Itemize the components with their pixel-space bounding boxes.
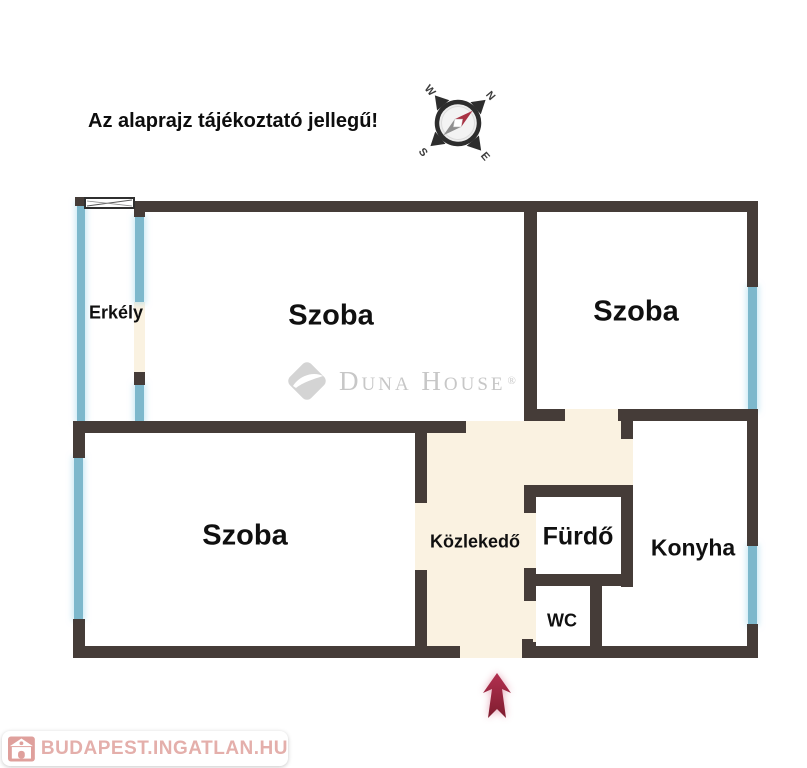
- room-label-szoba-right: Szoba: [593, 296, 678, 329]
- door-opening: [415, 503, 427, 570]
- room-label-furdo: Fürdő: [543, 523, 614, 552]
- window-marker: [135, 217, 144, 302]
- registered-mark: ®: [508, 375, 516, 387]
- room-label-szoba-bottom-left: Szoba: [202, 520, 287, 553]
- wall: [590, 586, 602, 658]
- window-marker: [748, 287, 757, 410]
- wall: [524, 409, 565, 421]
- dunahouse-watermark: Duna House®: [283, 357, 516, 405]
- window-marker: [748, 546, 757, 624]
- disclaimer-text: Az alaprajz tájékoztató jellegű!: [88, 110, 378, 133]
- door-opening: [524, 601, 536, 642]
- wall: [73, 421, 85, 458]
- room-label-wc: WC: [547, 611, 577, 632]
- wall: [73, 421, 466, 433]
- wall: [524, 485, 536, 513]
- window-marker: [74, 458, 83, 619]
- wall: [747, 410, 758, 546]
- compass-icon: N E S W: [408, 73, 508, 173]
- wall: [73, 646, 460, 658]
- room-label-kozlekedo: Közlekedő: [430, 532, 520, 553]
- entrance-arrow-icon: [479, 671, 515, 721]
- wall: [134, 201, 758, 212]
- wall: [134, 372, 145, 385]
- wall: [524, 201, 537, 409]
- wall: [524, 485, 633, 497]
- wall: [747, 201, 758, 287]
- compass-letter-e: E: [478, 150, 492, 163]
- wall: [531, 574, 633, 586]
- compass-letter-s: S: [416, 146, 430, 159]
- window-marker: [135, 385, 144, 421]
- dunahouse-brand-text: Duna House: [339, 366, 506, 397]
- wall: [415, 433, 427, 503]
- ingatlan-house-icon: [8, 736, 35, 762]
- wall: [134, 201, 145, 217]
- wall: [621, 409, 633, 439]
- wall: [415, 570, 427, 658]
- wall: [524, 586, 536, 601]
- wall: [618, 409, 758, 421]
- door-opening: [524, 513, 536, 568]
- balcony-railing: [84, 197, 135, 209]
- wall: [73, 619, 85, 658]
- wall: [621, 485, 633, 587]
- ingatlan-site-text: BUDAPEST.INGATLAN.HU: [41, 738, 288, 760]
- room-label-konyha: Konyha: [651, 535, 735, 562]
- wall: [522, 646, 758, 658]
- window-marker: [77, 203, 85, 421]
- ingatlan-watermark-bar: BUDAPEST.INGATLAN.HU: [2, 731, 288, 766]
- wall: [524, 642, 536, 658]
- room-label-erkely: Erkély: [89, 303, 143, 324]
- floor-plan: Az alaprajz tájékoztató jellegű! N E S W: [0, 0, 807, 768]
- dunahouse-diamond-icon: [283, 357, 331, 405]
- room-label-szoba-top-left: Szoba: [288, 300, 373, 333]
